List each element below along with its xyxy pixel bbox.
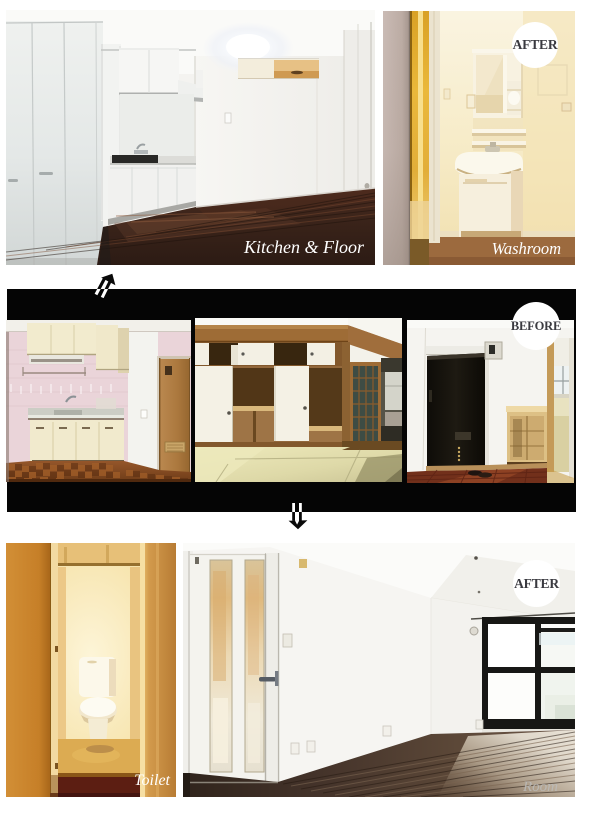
svg-text:Kitchen & Floor: Kitchen & Floor — [243, 237, 365, 257]
svg-text:Washroom: Washroom — [492, 239, 561, 258]
svg-text:Room: Room — [522, 779, 558, 795]
svg-text:Toilet: Toilet — [134, 772, 170, 789]
